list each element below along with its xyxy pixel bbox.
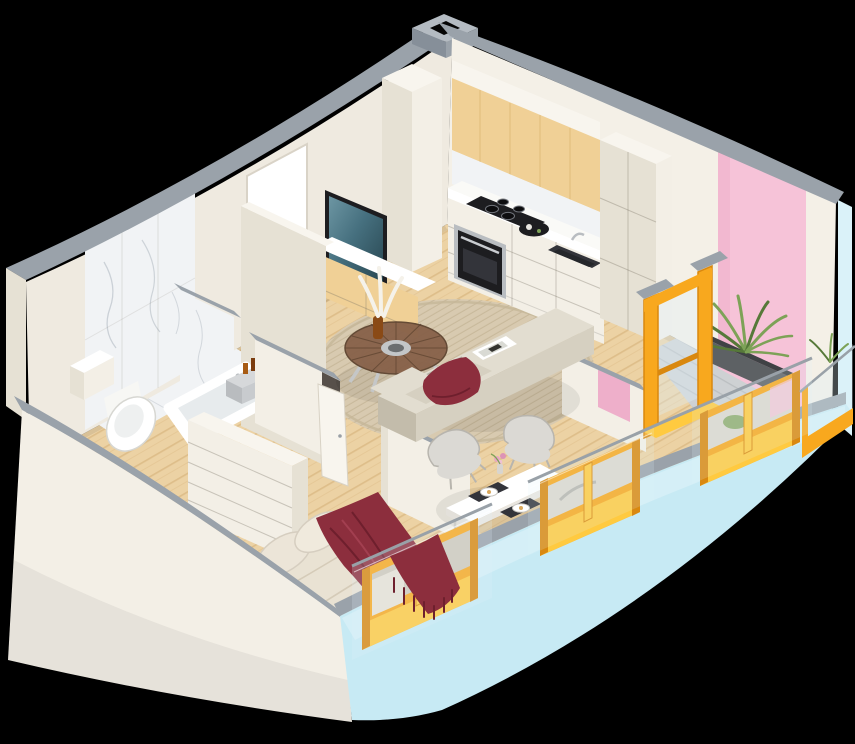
bedroom-door-open: [318, 384, 348, 486]
kitchen-column: [382, 64, 442, 272]
food-2: [519, 506, 523, 510]
apartment-3d-floorplan: [0, 0, 855, 744]
door-post-right: [698, 266, 712, 408]
tray-plate: [526, 224, 532, 230]
table-center-hole: [388, 344, 404, 352]
food-1: [487, 490, 491, 494]
perfume-bottle: [243, 363, 248, 374]
amber-vase: [373, 316, 383, 339]
sliding-door-glass: [658, 286, 698, 416]
serving-tray: [519, 222, 549, 237]
perfume-bottle-2: [251, 358, 255, 371]
tray-garnish: [537, 229, 541, 233]
door-handle: [338, 434, 342, 438]
apartment-render-stage: [0, 0, 855, 744]
door-post-left: [644, 294, 658, 438]
column-face-se: [412, 78, 442, 272]
